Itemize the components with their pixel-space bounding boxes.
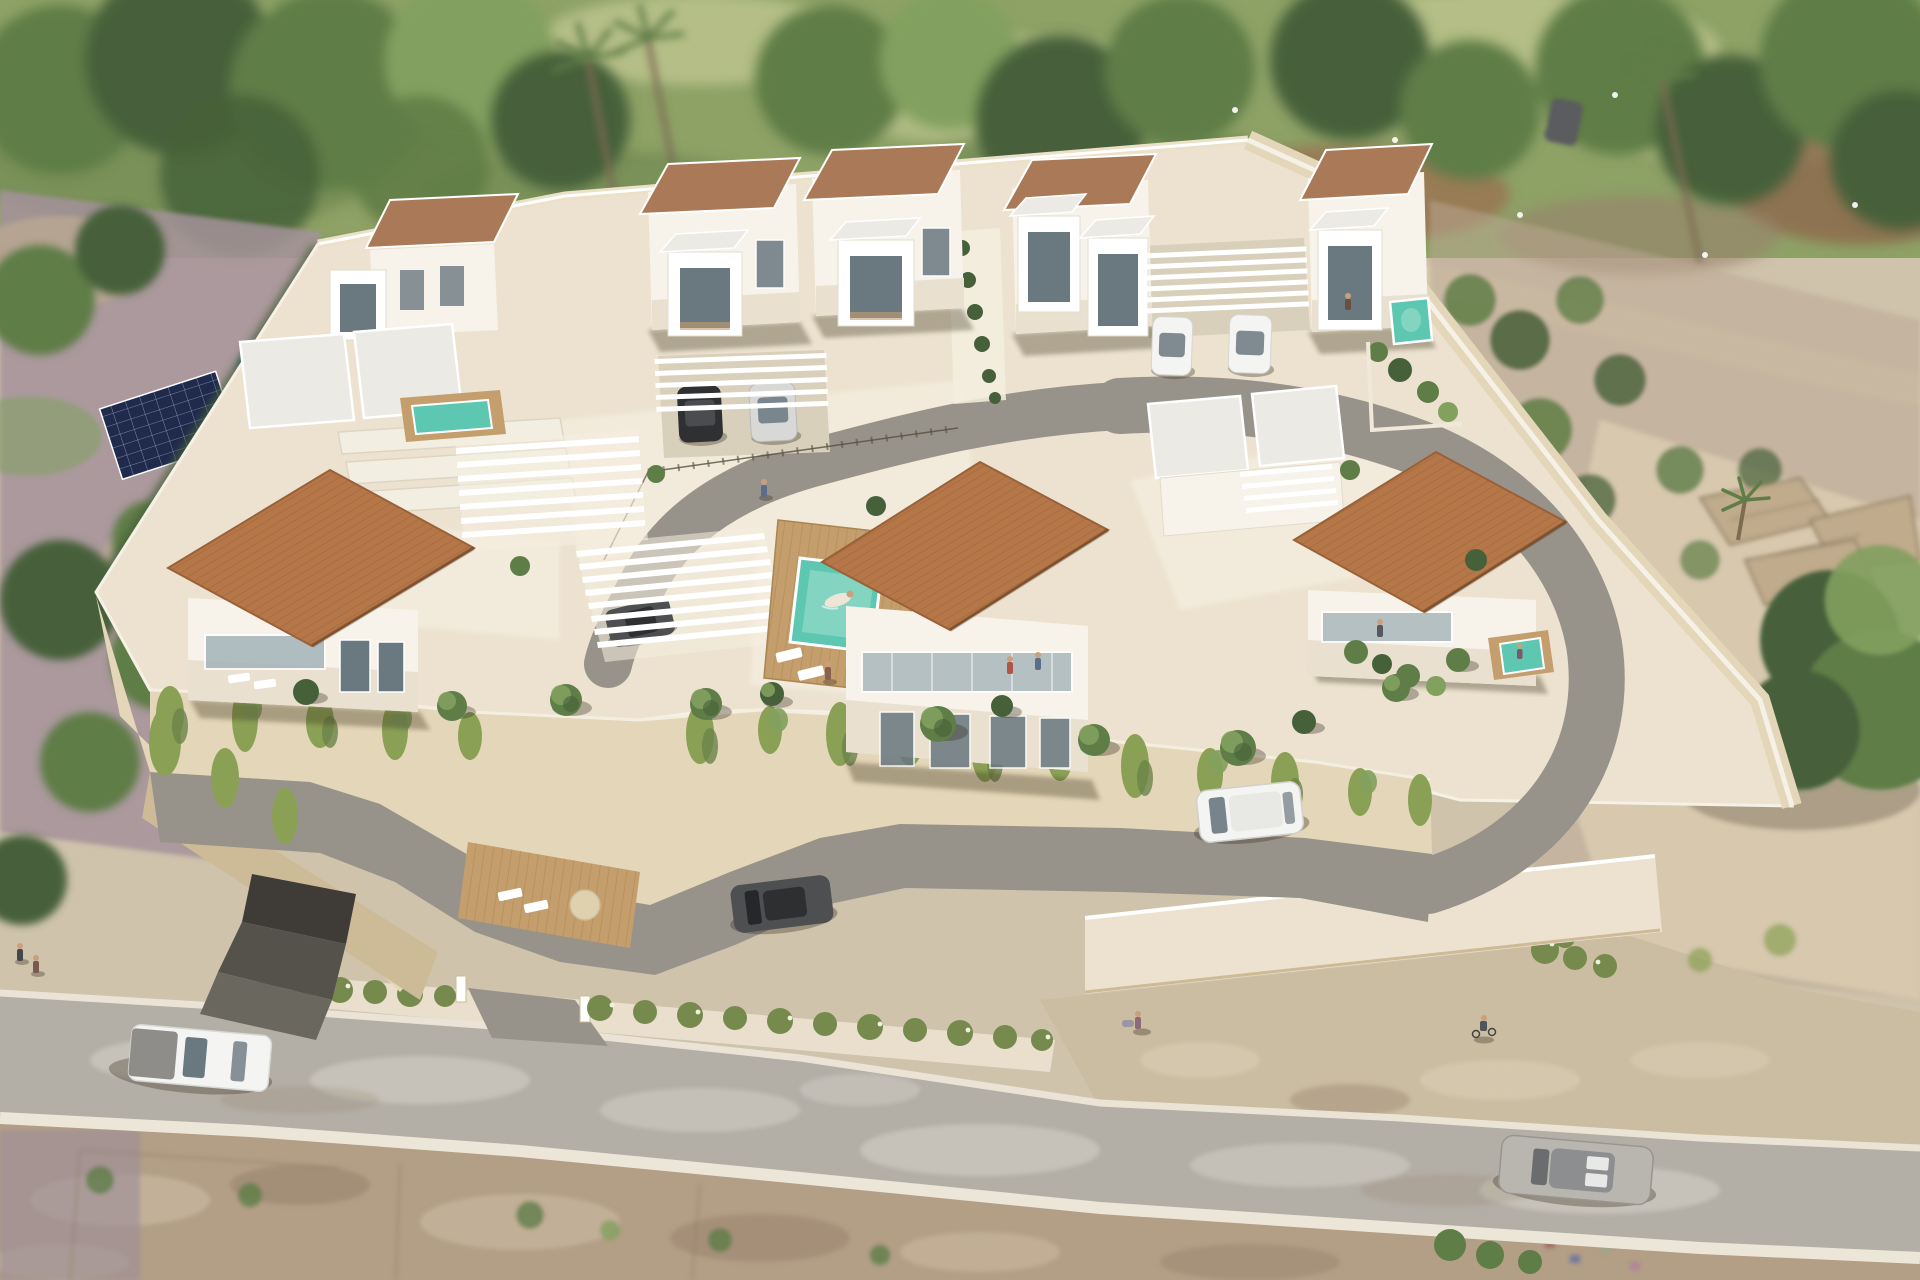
balcony-person [1377,619,1383,637]
aerial-render-image [0,0,1920,1280]
balcony-person [1035,652,1041,670]
gate-pillar-left [456,976,466,1002]
parked-car-white-2 [1228,314,1276,378]
box-balcony [830,218,920,326]
render-canvas [0,0,1920,1280]
plunge-pool-right [1488,630,1554,680]
parked-car-white-1 [1151,316,1197,379]
plunge-pool [1390,298,1432,344]
private-pool-left [400,390,506,442]
white-slab-roof [240,334,354,428]
balcony-person [1345,293,1351,310]
pedestrians-bottom-left [15,943,45,977]
rear-villa-2 [804,144,974,338]
rear-villa-1 [640,158,812,352]
box-balcony [660,230,748,336]
parasol [570,890,600,920]
pergola-short [455,430,648,552]
terrace-person [1517,643,1523,659]
pergola-long [575,527,792,662]
balcony-person [1007,656,1013,674]
